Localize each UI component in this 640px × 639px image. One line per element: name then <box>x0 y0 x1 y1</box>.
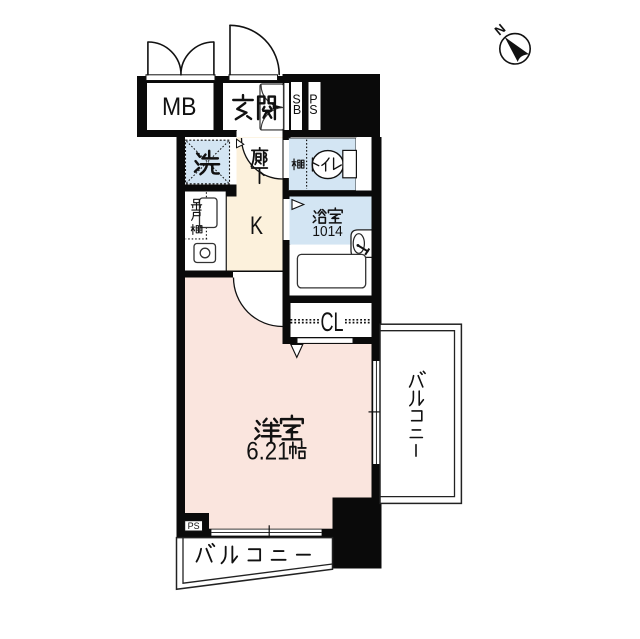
svg-text:CL: CL <box>320 306 343 336</box>
svg-text:K: K <box>250 211 263 239</box>
svg-text:MB: MB <box>162 93 197 121</box>
svg-text:1014: 1014 <box>312 223 342 240</box>
svg-text:PS: PS <box>188 521 200 531</box>
svg-text:B: B <box>293 103 301 117</box>
svg-text:6.21: 6.21 <box>246 438 289 465</box>
svg-text:S: S <box>309 103 317 117</box>
